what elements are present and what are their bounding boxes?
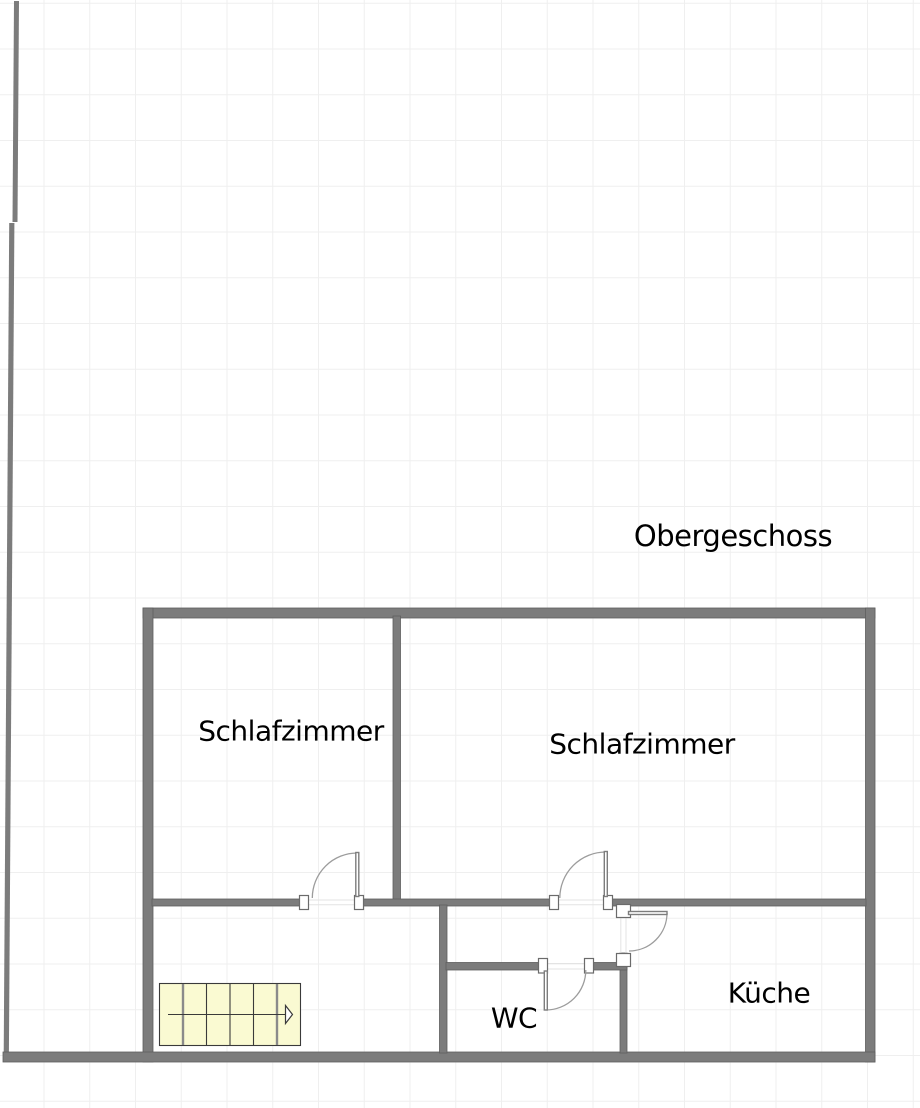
- door-jamb: [617, 954, 631, 967]
- adjacent-building-wall: [6, 1, 16, 1054]
- door-leaf: [604, 852, 607, 897]
- wall-left: [143, 608, 153, 1062]
- door-threshold: [621, 917, 626, 954]
- room-label-wc: WC: [491, 1002, 537, 1035]
- wall-top: [143, 608, 875, 618]
- door-leaf: [356, 853, 359, 897]
- door-bedroom-left: [300, 853, 364, 910]
- door-jamb: [300, 896, 309, 910]
- floor-plan-canvas: Obergeschoss Schlafzimmer Schlafzimmer W…: [0, 0, 920, 1108]
- door-jamb: [355, 896, 364, 910]
- door-threshold: [558, 900, 605, 905]
- wall-wc-left: [440, 905, 448, 1053]
- wall-hall-segment-3: [610, 899, 866, 906]
- wall-right: [866, 608, 876, 1062]
- door-swing-arc: [560, 852, 606, 898]
- door-threshold: [547, 964, 585, 970]
- staircase: [160, 984, 301, 1046]
- wall-hall-segment-1: [152, 899, 302, 906]
- door-kitchen: [617, 905, 668, 967]
- door-jamb: [550, 896, 559, 910]
- wall-bottom: [3, 1052, 875, 1062]
- door-swing-arc: [312, 853, 357, 898]
- adjacent-wall-lower-segment: [6, 223, 12, 1054]
- wall-bedroom-divider: [393, 616, 401, 900]
- door-swing-arc: [629, 913, 667, 951]
- floor-plan-drawing: [0, 0, 920, 1108]
- adjacent-wall-upper-segment: [15, 1, 17, 222]
- door-wc: [539, 959, 594, 1011]
- door-leaf: [629, 912, 668, 915]
- door-bedroom-right: [550, 852, 613, 910]
- wall-hall-segment-2: [361, 899, 552, 906]
- wall-wc-top-left: [446, 963, 541, 971]
- door-threshold: [306, 900, 356, 905]
- door-swing-arc: [546, 970, 586, 1010]
- floor-title-label: Obergeschoss: [634, 519, 832, 553]
- door-leaf: [544, 971, 547, 1010]
- room-label-bedroom-right: Schlafzimmer: [549, 728, 734, 761]
- room-label-kitchen: Küche: [728, 977, 811, 1010]
- room-label-bedroom-left: Schlafzimmer: [198, 715, 383, 748]
- door-jamb: [604, 896, 613, 910]
